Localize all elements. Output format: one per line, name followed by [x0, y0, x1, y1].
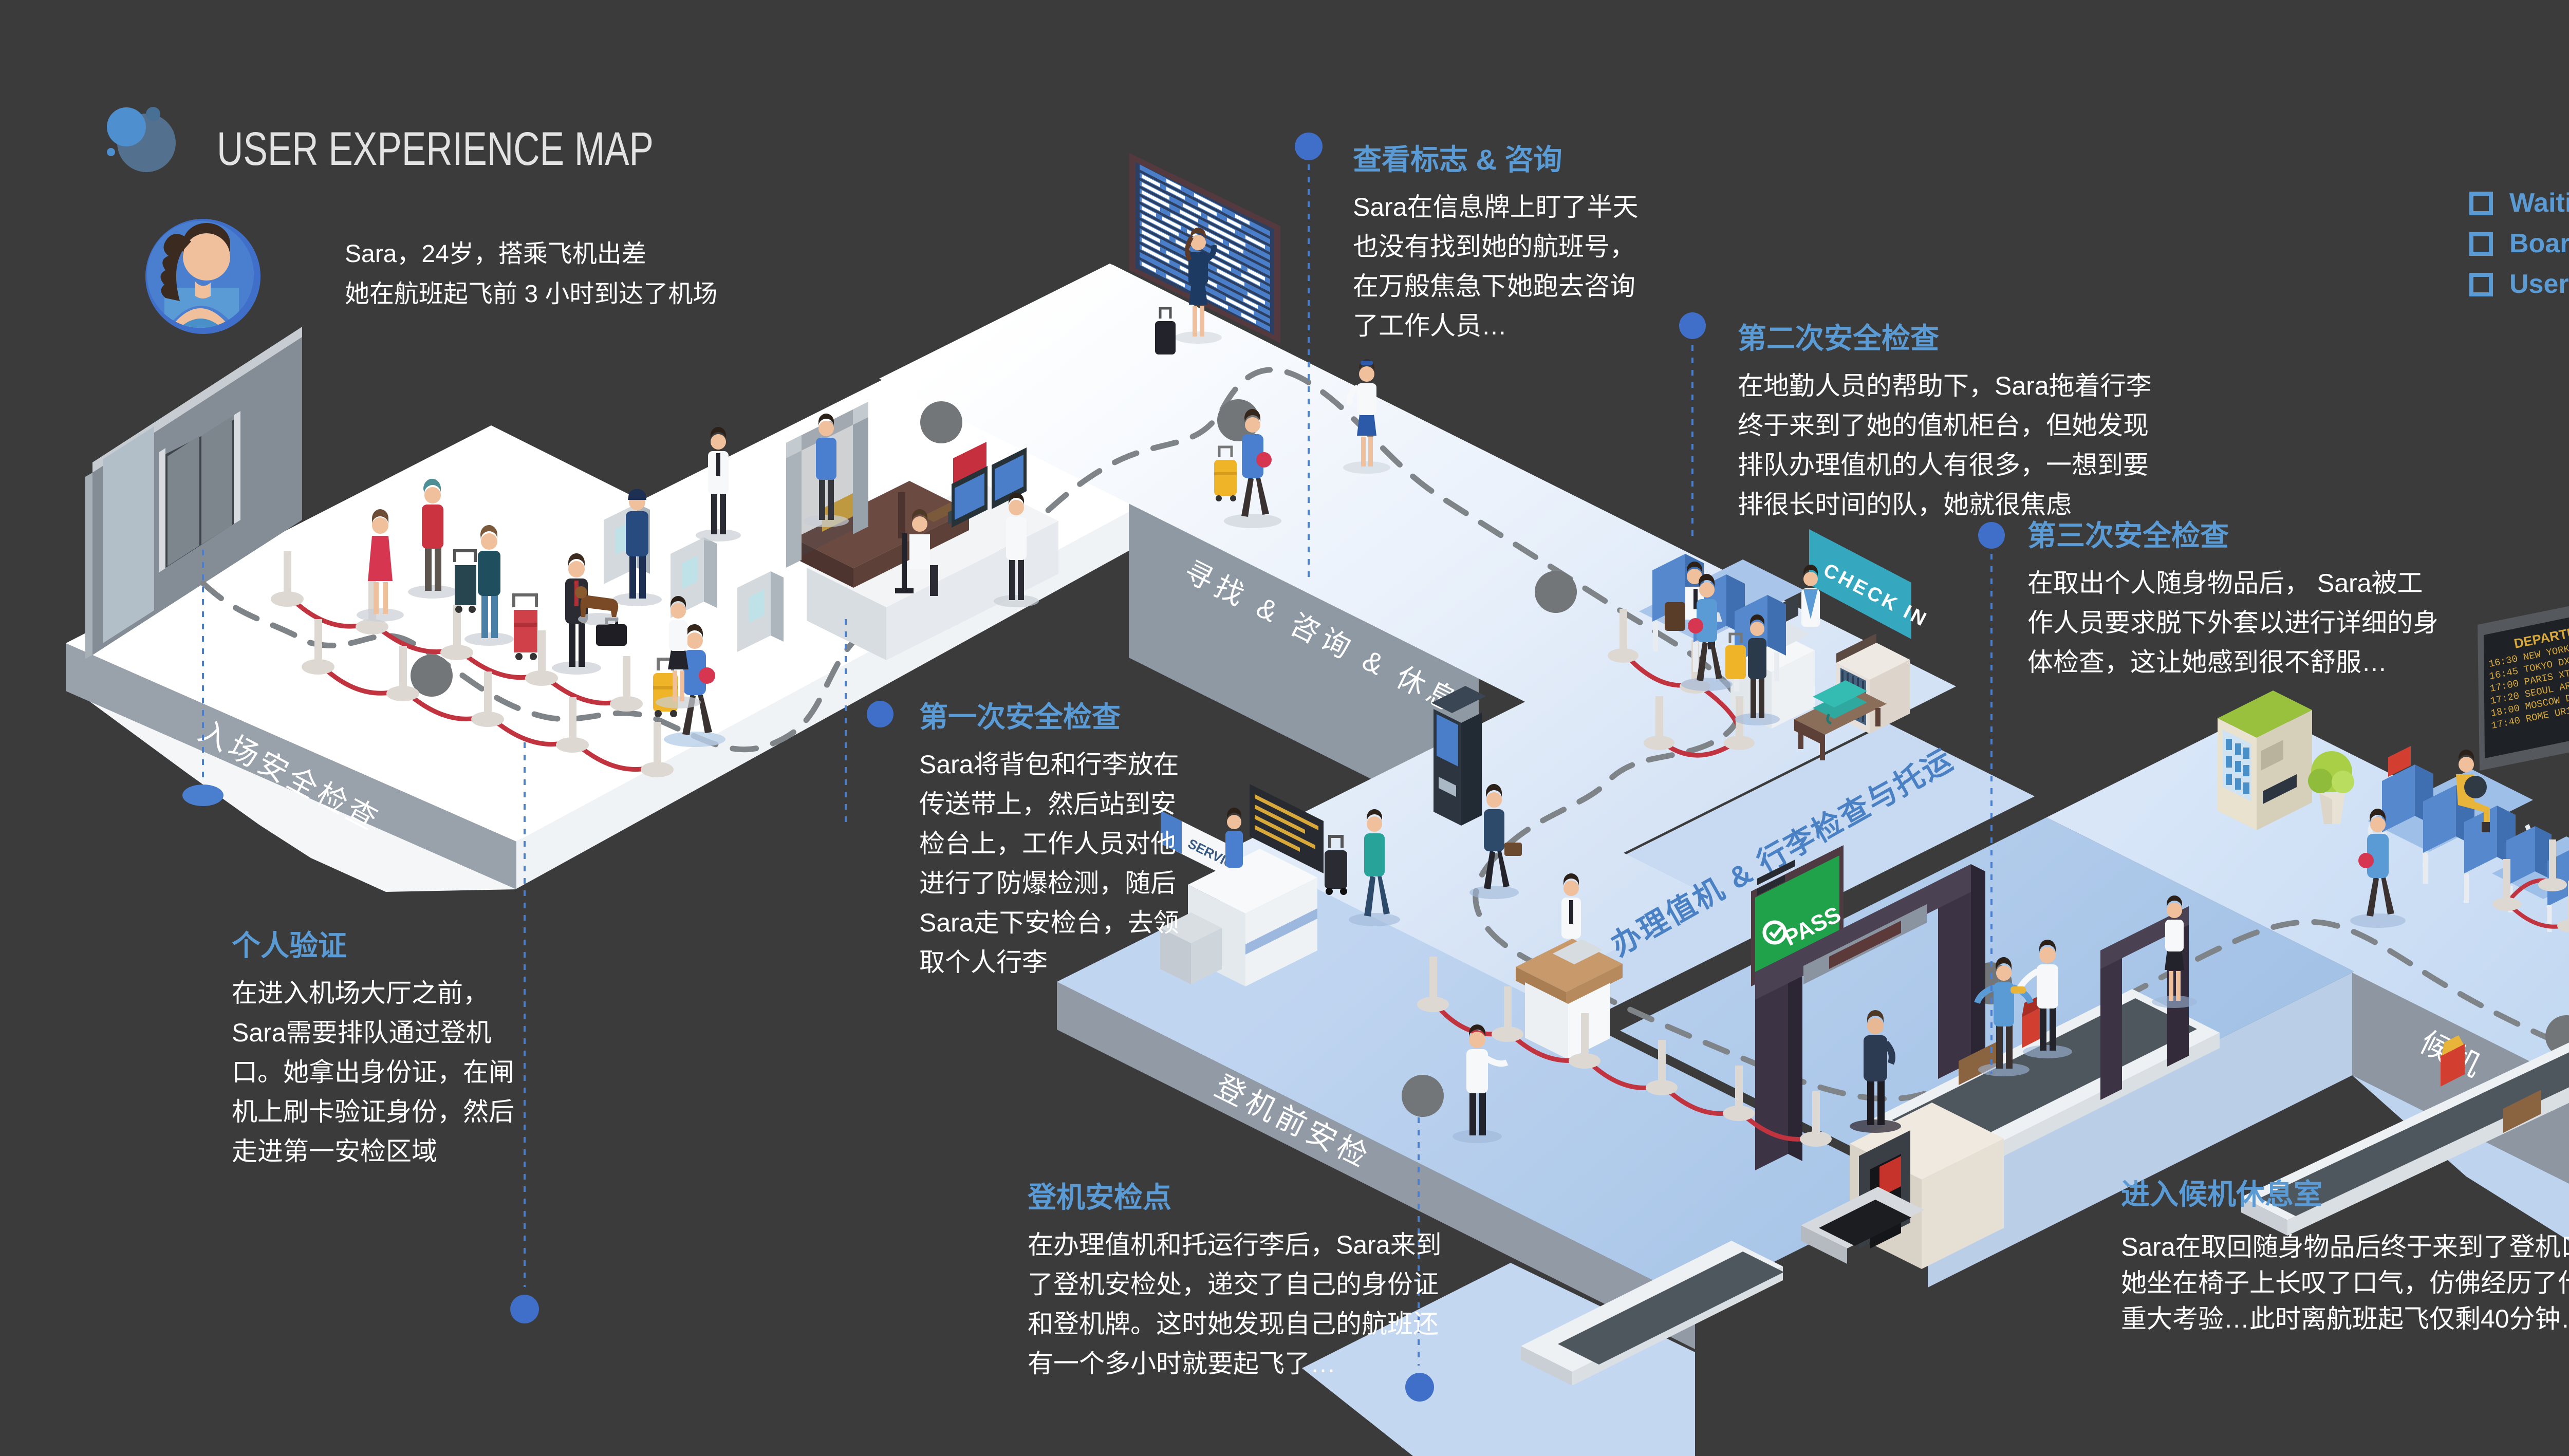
svg-text:进入候机休息室: 进入候机休息室: [2121, 1178, 2322, 1210]
svg-text:进行了防爆检测，随后: 进行了防爆检测，随后: [919, 869, 1176, 898]
svg-text:Sara在信息牌上盯了半天: Sara在信息牌上盯了半天: [1353, 193, 1639, 221]
svg-text:机上刷卡验证身份，然后: 机上刷卡验证身份，然后: [232, 1097, 514, 1126]
svg-text:口。她拿出身份证，在闸: 口。她拿出身份证，在闸: [232, 1058, 514, 1087]
svg-text:在地勤人员的帮助下，Sara拖着行李: 在地勤人员的帮助下，Sara拖着行李: [1738, 371, 2152, 400]
svg-text:取个人行李: 取个人行李: [919, 948, 1048, 977]
svg-text:终于来到了她的值机柜台，但她发现: 终于来到了她的值机柜台，但她发现: [1738, 411, 2149, 440]
svg-text:了工作人员…: 了工作人员…: [1353, 311, 1507, 340]
svg-text:在取出个人随身物品后， Sara被工: 在取出个人随身物品后， Sara被工: [2027, 569, 2423, 598]
svg-text:Sara走下安检台，去领: Sara走下安检台，去领: [919, 908, 1179, 937]
svg-text:User Experience: User Experience: [2509, 269, 2569, 299]
svg-text:在进入机场大厅之前，: 在进入机场大厅之前，: [232, 979, 489, 1007]
svg-text:Sara，24岁，搭乘飞机出差: Sara，24岁，搭乘飞机出差: [345, 240, 646, 268]
svg-text:排很长时间的队，她就很焦虑: 排很长时间的队，她就很焦虑: [1738, 490, 2072, 519]
svg-text:在万般焦急下她跑去咨询: 在万般焦急下她跑去咨询: [1353, 272, 1635, 301]
svg-text:Sara需要排队通过登机: Sara需要排队通过登机: [232, 1018, 492, 1047]
svg-text:检台上，工作人员对他: 检台上，工作人员对他: [919, 829, 1176, 858]
svg-text:作人员要求脱下外套以进行详细的身: 作人员要求脱下外套以进行详细的身: [2027, 608, 2438, 637]
svg-text:Boarding Process: Boarding Process: [2509, 229, 2569, 258]
svg-text:Sara在取回随身物品后终于来到了登机口。: Sara在取回随身物品后终于来到了登机口。: [2121, 1233, 2569, 1261]
svg-text:有一个多小时就要起飞了…: 有一个多小时就要起飞了…: [1028, 1349, 1336, 1378]
svg-text:体检查，这让她感到很不舒服…: 体检查，这让她感到很不舒服…: [2027, 648, 2387, 677]
svg-text:和登机牌。这时她发现自己的航班还: 和登机牌。这时她发现自己的航班还: [1028, 1310, 1439, 1338]
svg-text:Sara将背包和行李放在: Sara将背包和行李放在: [919, 750, 1179, 779]
svg-text:在办理值机和托运行李后，Sara来到: 在办理值机和托运行李后，Sara来到: [1028, 1230, 1442, 1259]
svg-text:她坐在椅子上长叹了口气，仿佛经历了什么: 她坐在椅子上长叹了口气，仿佛经历了什么: [2121, 1268, 2569, 1297]
svg-text:登机安检点: 登机安检点: [1027, 1181, 1171, 1214]
svg-text:了登机安检处，递交了自己的身份证: 了登机安检处，递交了自己的身份证: [1028, 1270, 1439, 1299]
svg-text:重大考验…此时离航班起飞仅剩40分钟…: 重大考验…此时离航班起飞仅剩40分钟…: [2121, 1304, 2569, 1333]
svg-text:她在航班起飞前 3 小时到达了机场: 她在航班起飞前 3 小时到达了机场: [345, 281, 717, 308]
svg-text:第一次安全检查: 第一次安全检查: [919, 701, 1121, 733]
svg-text:个人验证: 个人验证: [232, 929, 347, 962]
svg-text:传送带上，然后站到安: 传送带上，然后站到安: [919, 790, 1176, 818]
svg-text:Waiting Time: Waiting Time: [2509, 188, 2569, 218]
svg-text:排队办理值机的人有很多，一想到要: 排队办理值机的人有很多，一想到要: [1738, 451, 2149, 479]
svg-text:第二次安全检查: 第二次安全检查: [1738, 322, 1939, 354]
svg-text:查看标志 & 咨询: 查看标志 & 咨询: [1353, 143, 1562, 176]
svg-text:也没有找到她的航班号，: 也没有找到她的航班号，: [1353, 232, 1635, 261]
svg-text:走进第一安检区域: 走进第一安检区域: [232, 1137, 437, 1166]
svg-text:USER EXPERIENCE MAP: USER EXPERIENCE MAP: [217, 123, 654, 175]
svg-text:第三次安全检查: 第三次安全检查: [2027, 519, 2229, 552]
